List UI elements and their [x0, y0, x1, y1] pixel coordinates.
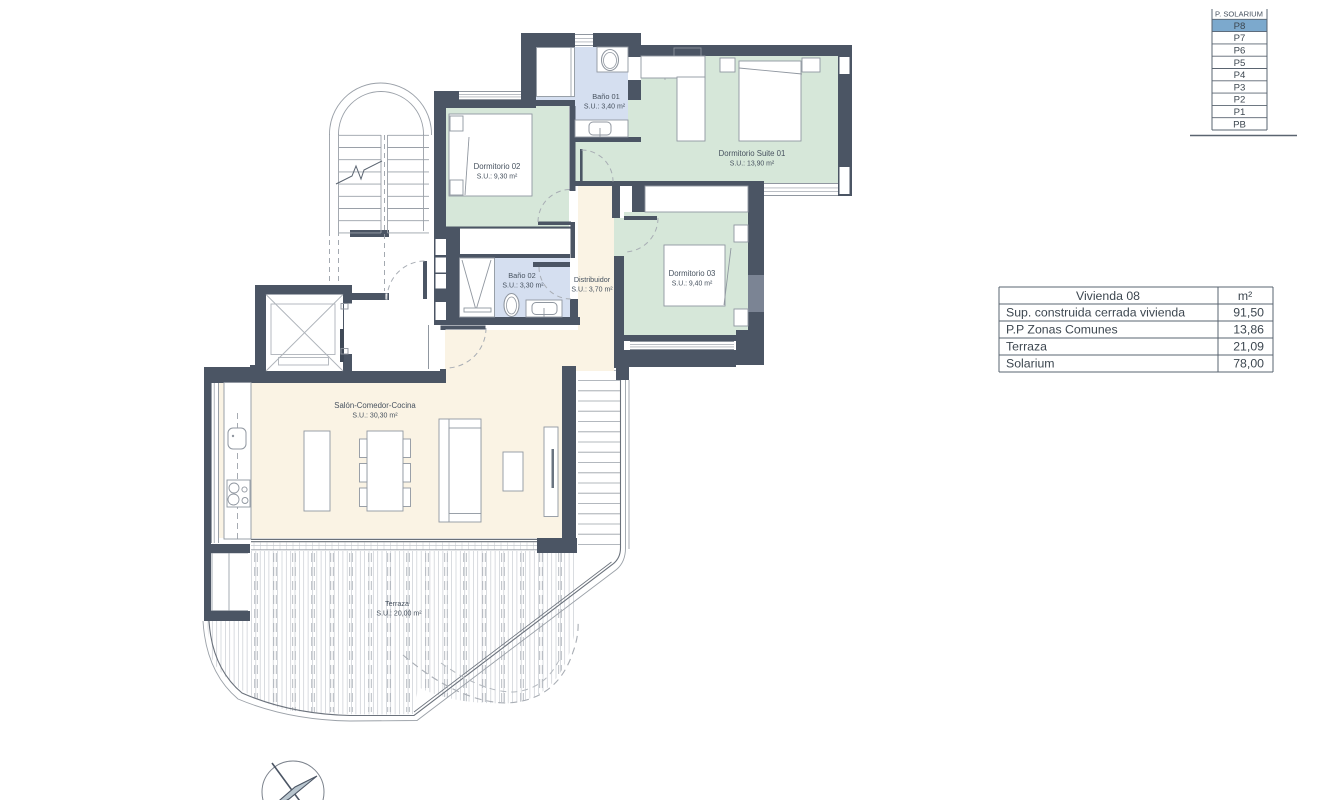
svg-text:Solarium: Solarium	[1006, 357, 1055, 371]
svg-text:Terraza: Terraza	[385, 599, 409, 608]
svg-text:Baño 02: Baño 02	[508, 271, 536, 280]
svg-text:Sup. construida cerrada vivien: Sup. construida cerrada vivienda	[1006, 306, 1185, 320]
svg-text:P. SOLARIUM: P. SOLARIUM	[1215, 10, 1263, 19]
svg-text:Salón-Comedor-Cocina: Salón-Comedor-Cocina	[334, 401, 416, 410]
svg-text:P3: P3	[1234, 82, 1246, 93]
svg-text:P2: P2	[1234, 95, 1246, 106]
svg-text:Dormitorio 03: Dormitorio 03	[669, 269, 716, 278]
svg-text:P.P Zonas Comunes: P.P Zonas Comunes	[1006, 323, 1118, 337]
svg-text:P6: P6	[1234, 46, 1246, 57]
svg-text:13,86: 13,86	[1233, 323, 1264, 337]
svg-text:Dormitorio Suite 01: Dormitorio Suite 01	[719, 149, 786, 158]
svg-text:S.U.: 30,30 m²: S.U.: 30,30 m²	[352, 413, 398, 420]
svg-text:S.U.: 9,40 m²: S.U.: 9,40 m²	[672, 281, 713, 288]
svg-text:S.U.: 9,30 m²: S.U.: 9,30 m²	[477, 174, 518, 181]
svg-text:PB: PB	[1233, 119, 1246, 130]
svg-text:P4: P4	[1234, 70, 1246, 81]
svg-text:P1: P1	[1234, 107, 1246, 118]
svg-text:21,09: 21,09	[1233, 340, 1264, 354]
svg-text:Terraza: Terraza	[1006, 340, 1047, 354]
svg-text:Dormitorio 02: Dormitorio 02	[474, 162, 521, 171]
svg-text:P5: P5	[1234, 58, 1246, 69]
svg-text:S.U.: 3,40 m²: S.U.: 3,40 m²	[584, 104, 626, 111]
svg-text:m²: m²	[1238, 289, 1252, 303]
svg-text:S.U.: 3,30 m²: S.U.: 3,30 m²	[502, 283, 544, 290]
svg-text:Vivienda 08: Vivienda 08	[1076, 289, 1140, 303]
svg-text:P8: P8	[1234, 21, 1246, 32]
svg-text:P7: P7	[1234, 33, 1246, 44]
svg-text:Distribuidor: Distribuidor	[574, 275, 611, 284]
svg-text:S.U.: 13,90 m²: S.U.: 13,90 m²	[730, 161, 775, 168]
svg-text:S.U.: 3,70 m²: S.U.: 3,70 m²	[571, 287, 613, 294]
svg-text:S.U.: 20,00 m²: S.U.: 20,00 m²	[376, 611, 422, 618]
svg-text:91,50: 91,50	[1233, 306, 1264, 320]
svg-text:Baño 01: Baño 01	[592, 92, 620, 101]
svg-text:78,00: 78,00	[1233, 357, 1264, 371]
